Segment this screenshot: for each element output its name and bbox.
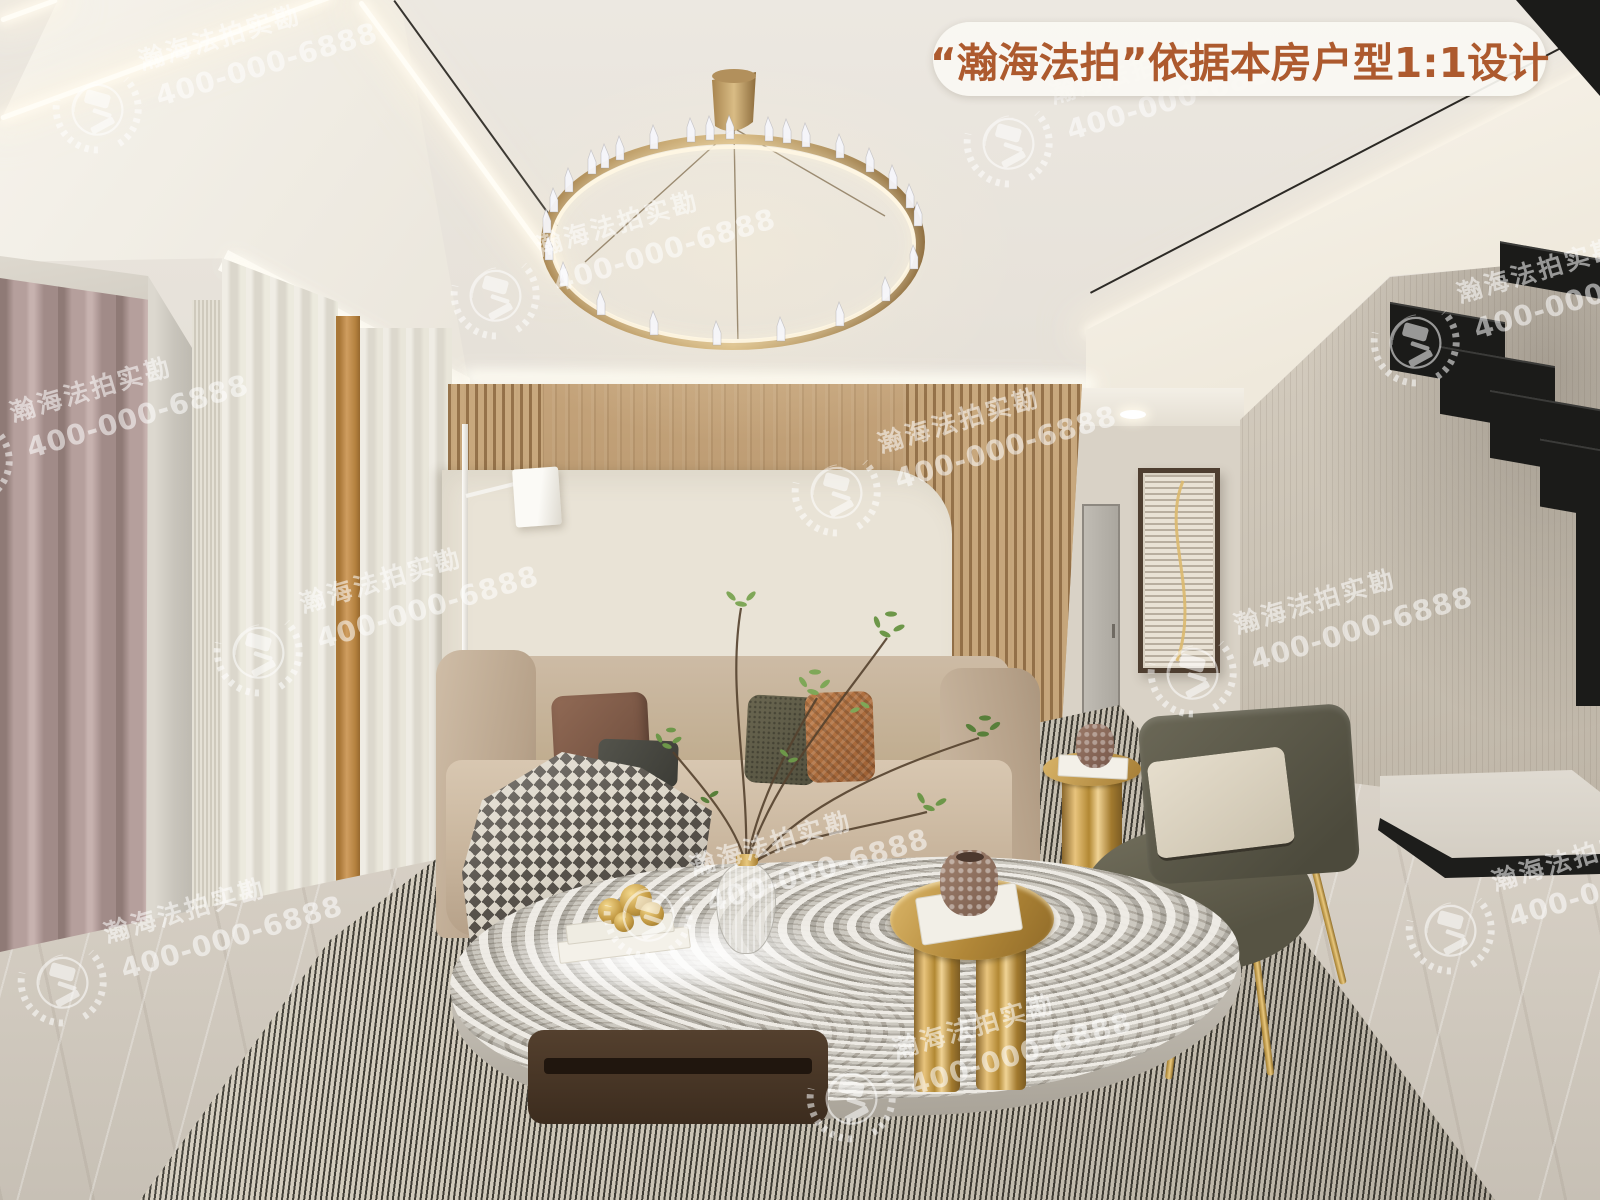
- gold-ornament: [614, 912, 634, 932]
- side-table-front-leg: [976, 938, 1026, 1090]
- stair-stringer: [1576, 470, 1600, 706]
- gold-ornament: [640, 902, 664, 926]
- caramel-curtain-accent: [336, 316, 360, 904]
- doorway-jamb: [146, 274, 194, 956]
- coffee-table-shelf-slot: [544, 1058, 812, 1074]
- floor-lamp-head: [512, 466, 562, 527]
- coffee-table-wood-base: [528, 1030, 828, 1124]
- living-room-render: 瀚海法拍实勘 400-000-6888 瀚海法拍实勘 400-000-6888 …: [0, 0, 1600, 1200]
- fluted-wall-panel: [192, 300, 222, 938]
- crystal-ring-chandelier: [505, 50, 955, 360]
- promo-banner: “瀚海法拍”依据本房户型1:1设计: [933, 22, 1546, 96]
- downlight: [1120, 410, 1146, 419]
- promo-banner-text: “瀚海法拍”依据本房户型1:1设计: [930, 29, 1549, 89]
- mauve-curtain: [0, 272, 150, 964]
- glass-vase-collar: [736, 854, 758, 866]
- ceramic-vase-mouth: [956, 852, 984, 862]
- sheer-curtain-left: [222, 258, 338, 908]
